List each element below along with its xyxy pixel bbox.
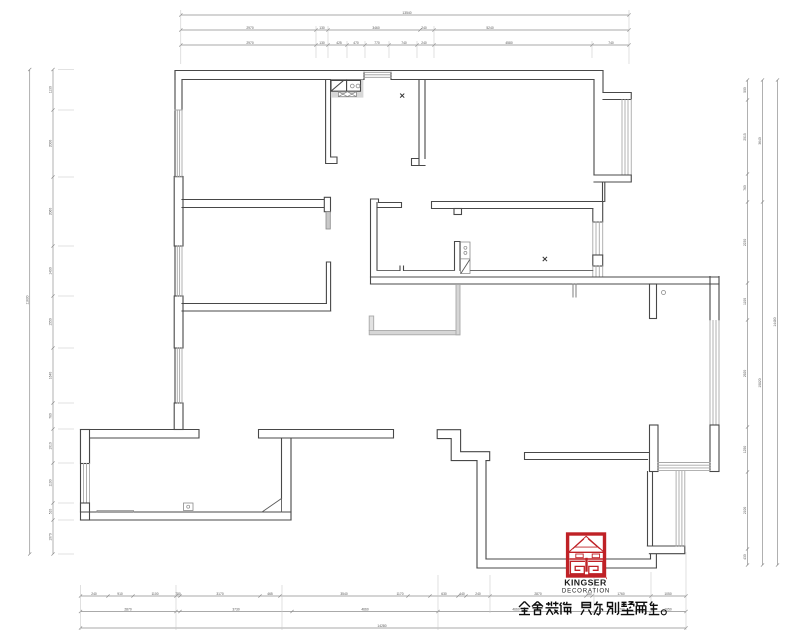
svg-text:2000: 2000 bbox=[49, 140, 53, 148]
svg-text:1640: 1640 bbox=[49, 372, 53, 380]
svg-text:5240: 5240 bbox=[486, 26, 494, 30]
svg-text:2060: 2060 bbox=[49, 208, 53, 216]
svg-text:1050: 1050 bbox=[664, 592, 672, 596]
svg-text:910: 910 bbox=[117, 592, 123, 596]
svg-text:3170: 3170 bbox=[216, 592, 224, 596]
svg-text:1100: 1100 bbox=[743, 298, 747, 305]
svg-text:1490: 1490 bbox=[49, 267, 53, 275]
svg-text:2970: 2970 bbox=[246, 26, 254, 30]
svg-text:740: 740 bbox=[401, 41, 407, 45]
svg-text:4660: 4660 bbox=[361, 607, 369, 611]
svg-text:2230: 2230 bbox=[743, 239, 747, 247]
svg-text:750: 750 bbox=[175, 592, 181, 596]
svg-text:3640: 3640 bbox=[758, 137, 762, 145]
svg-text:13540: 13540 bbox=[402, 11, 411, 15]
svg-text:770: 770 bbox=[374, 41, 380, 45]
svg-text:4660: 4660 bbox=[512, 607, 520, 611]
svg-text:500: 500 bbox=[743, 87, 747, 93]
svg-text:740: 740 bbox=[608, 41, 614, 45]
svg-text:430: 430 bbox=[743, 554, 747, 560]
svg-text:1010: 1010 bbox=[49, 442, 53, 450]
svg-text:130: 130 bbox=[319, 26, 325, 30]
svg-text:1760: 1760 bbox=[617, 592, 625, 596]
svg-text:630: 630 bbox=[441, 592, 447, 596]
svg-text:3540: 3540 bbox=[340, 592, 348, 596]
svg-text:1550: 1550 bbox=[49, 318, 53, 326]
svg-text:3460: 3460 bbox=[372, 26, 380, 30]
svg-text:4580: 4580 bbox=[505, 41, 513, 45]
svg-text:DECORATION: DECORATION bbox=[562, 587, 610, 594]
svg-text:1130: 1130 bbox=[49, 86, 53, 93]
svg-text:14480: 14480 bbox=[773, 317, 777, 326]
svg-text:440: 440 bbox=[459, 592, 465, 596]
svg-text:14280: 14280 bbox=[377, 624, 386, 628]
svg-text:2015: 2015 bbox=[743, 133, 747, 141]
svg-text:1170: 1170 bbox=[396, 592, 403, 596]
svg-text:240: 240 bbox=[91, 592, 97, 596]
svg-text:760: 760 bbox=[743, 185, 747, 191]
svg-text:1100: 1100 bbox=[151, 592, 158, 596]
svg-text:2870: 2870 bbox=[124, 607, 132, 611]
svg-text:11830: 11830 bbox=[25, 295, 29, 304]
svg-text:3730: 3730 bbox=[232, 607, 240, 611]
svg-text:425: 425 bbox=[336, 41, 342, 45]
svg-text:130: 130 bbox=[319, 41, 325, 45]
svg-text:2920: 2920 bbox=[743, 370, 747, 378]
svg-text:780: 780 bbox=[49, 413, 53, 419]
svg-text:1250: 1250 bbox=[743, 446, 747, 454]
svg-text:240: 240 bbox=[475, 592, 481, 596]
svg-text:1190: 1190 bbox=[49, 479, 53, 486]
svg-text:510: 510 bbox=[49, 509, 53, 515]
svg-text:240: 240 bbox=[421, 26, 427, 30]
svg-text:10820: 10820 bbox=[758, 378, 762, 387]
svg-text:KINGSER: KINGSER bbox=[564, 577, 607, 587]
svg-text:470: 470 bbox=[353, 41, 359, 45]
svg-text:2870: 2870 bbox=[534, 592, 542, 596]
svg-text:2100: 2100 bbox=[743, 507, 747, 515]
svg-text:2970: 2970 bbox=[246, 41, 254, 45]
svg-text:465: 465 bbox=[267, 592, 273, 596]
svg-text:1070: 1070 bbox=[49, 533, 53, 541]
svg-text:240: 240 bbox=[421, 41, 427, 45]
